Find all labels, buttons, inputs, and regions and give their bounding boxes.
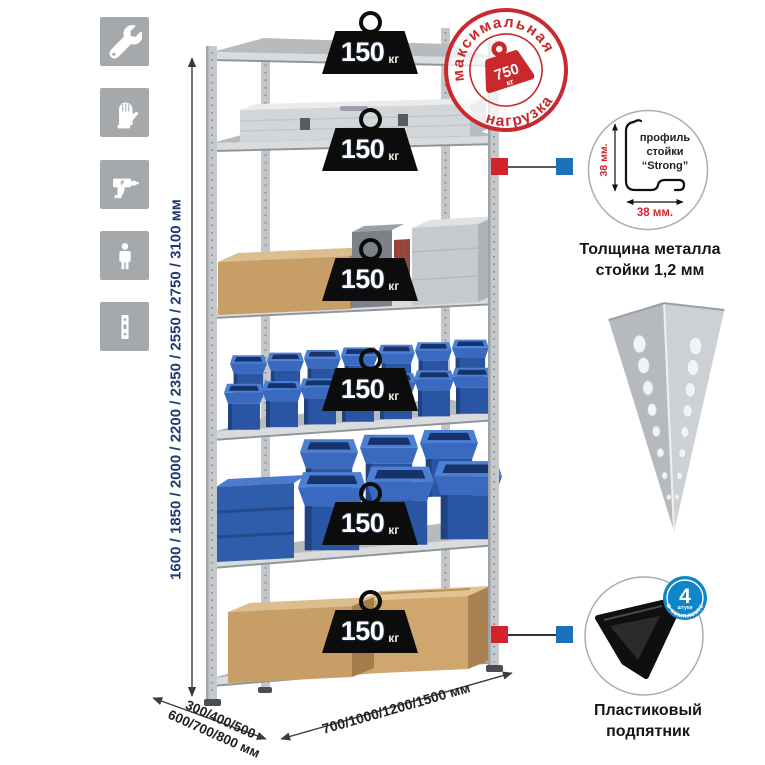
badge-small-text: штуки: [677, 605, 692, 611]
weight-icon: 150 кг: [322, 610, 418, 653]
gloves-icon: [100, 88, 149, 137]
weight-icon: 150 кг: [322, 128, 418, 171]
weight-ring-icon: [359, 348, 382, 371]
callout-red-marker-top: [491, 158, 508, 175]
profile-callout: [491, 158, 573, 175]
weight-ring-icon: [359, 11, 382, 34]
rack-post-glyph: [108, 310, 142, 344]
profile-detail: 38 мм. 38 мм. профиль стойки “Strong”: [585, 107, 711, 233]
shelf-load-badge-4: 150 кг: [322, 348, 418, 411]
plastic-foot-back-left: [258, 687, 272, 693]
foot-caption-line2: подпятник: [578, 722, 718, 743]
height-dimension-label: 1600 / 1850 / 2000 / 2200 / 2350 / 2550 …: [168, 110, 185, 670]
profile-label-line1: профиль: [640, 132, 690, 144]
profile-dim-vertical: 38 мм.: [598, 143, 610, 176]
callout-blue-marker-bottom: [556, 626, 573, 643]
euro-container: [216, 475, 306, 562]
wrench-icon: [100, 17, 149, 66]
shelf-load-badge-3: 150 кг: [322, 238, 418, 301]
shelf-load-badge-2: 150 кг: [322, 108, 418, 171]
person-icon: [100, 231, 149, 280]
rack-post-icon: [100, 302, 149, 351]
weight-ring-icon: [359, 482, 382, 505]
weight-icon: 150 кг: [322, 258, 418, 301]
callout-red-marker-bottom: [491, 626, 508, 643]
weight-icon: 150 кг: [322, 502, 418, 545]
profile-caption-line1: Толщина металла: [560, 240, 740, 261]
person-glyph: [108, 239, 142, 273]
shelf-load-badge-1: 150 кг: [322, 11, 418, 74]
callout-blue-marker-top: [556, 158, 573, 175]
max-load-stamp: максимальная нагрузка 750 кг: [440, 4, 572, 136]
profile-label-line2: стойки: [646, 146, 683, 158]
gloves-glyph: [107, 95, 143, 131]
weight-icon: 150 кг: [322, 31, 418, 74]
corner-post-image: [595, 295, 755, 540]
drill-icon: [100, 160, 149, 209]
shelving-rack-infographic: 150 кг 150 кг 150 кг 150 кг 150 кг: [0, 0, 765, 765]
shelf-load-badge-6: 150 кг: [322, 590, 418, 653]
foot-detail: 4 штуки в комплекте: [584, 570, 734, 705]
wrench-glyph: [108, 25, 142, 59]
weight-icon: 150 кг: [322, 368, 418, 411]
profile-label-line3: “Strong”: [642, 160, 688, 172]
weight-ring-icon: [359, 238, 382, 261]
foot-callout: [491, 626, 573, 643]
quantity-badge: 4 штуки в комплекте: [663, 576, 707, 620]
profile-caption: Толщина металла стойки 1,2 мм: [560, 240, 740, 282]
weight-ring-icon: [359, 590, 382, 613]
drill-glyph: [107, 167, 143, 203]
shelf-load-badge-5: 150 кг: [322, 482, 418, 545]
weight-ring-icon: [359, 108, 382, 131]
profile-dim-horizontal: 38 мм.: [637, 207, 673, 219]
profile-caption-line2: стойки 1,2 мм: [560, 261, 740, 282]
foot-caption: Пластиковый подпятник: [578, 701, 718, 743]
